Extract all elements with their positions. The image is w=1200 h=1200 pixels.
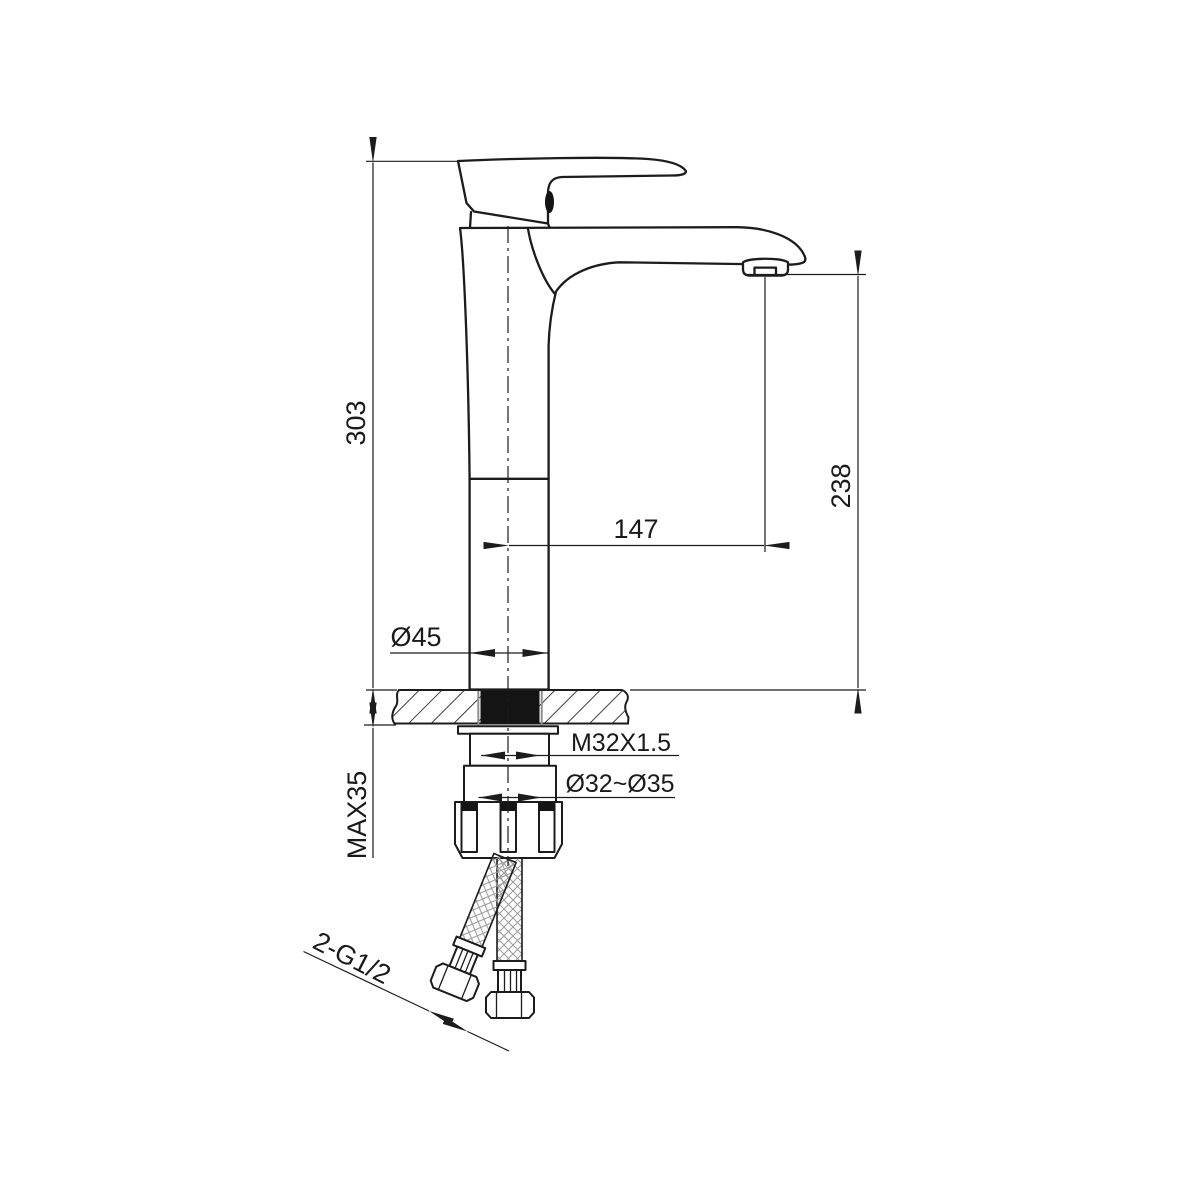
dim-max-thickness: MAX35 xyxy=(342,725,396,859)
handle-base-joint-left xyxy=(470,212,471,228)
dim-label-m32: M32X1.5 xyxy=(571,729,671,757)
handle-base-joint-right xyxy=(548,224,550,228)
dim-label-303: 303 xyxy=(341,400,371,445)
dim-spout-height: 238 xyxy=(630,275,866,691)
faucet-technical-drawing: 303 238 147 Ø45 M32X1.5 xyxy=(0,0,1200,1200)
nut-rib-cap xyxy=(462,802,478,811)
dim-label-max35: MAX35 xyxy=(342,771,372,860)
mounting-stud-section xyxy=(481,691,540,724)
faucet-outline xyxy=(458,158,805,690)
dim-label-d45: Ø45 xyxy=(390,622,441,652)
drawing-canvas: 303 238 147 Ø45 M32X1.5 xyxy=(0,0,1200,1200)
dim-label-147: 147 xyxy=(613,514,658,544)
nut-rib-cap xyxy=(539,802,555,811)
hose-ferrule xyxy=(494,961,526,970)
dimension-annotations: 303 238 147 Ø45 M32X1.5 xyxy=(304,161,867,1051)
hose-hex-nut xyxy=(486,992,534,1018)
shank-collar xyxy=(464,766,556,802)
hose-crimp-collar xyxy=(498,970,521,992)
handle-pivot-cap xyxy=(545,191,554,213)
threaded-shank xyxy=(470,734,549,766)
dim-label-d32: Ø32~Ø35 xyxy=(565,770,674,798)
dim-total-height: 303 xyxy=(341,161,459,690)
supply-hoses xyxy=(429,849,534,1018)
body-spout-outline xyxy=(460,227,805,689)
dim-label-2g12: 2-G1/2 xyxy=(308,926,395,990)
leader-line-lower xyxy=(468,1032,510,1052)
dim-label-238: 238 xyxy=(826,463,856,508)
handle-lever xyxy=(458,158,686,224)
